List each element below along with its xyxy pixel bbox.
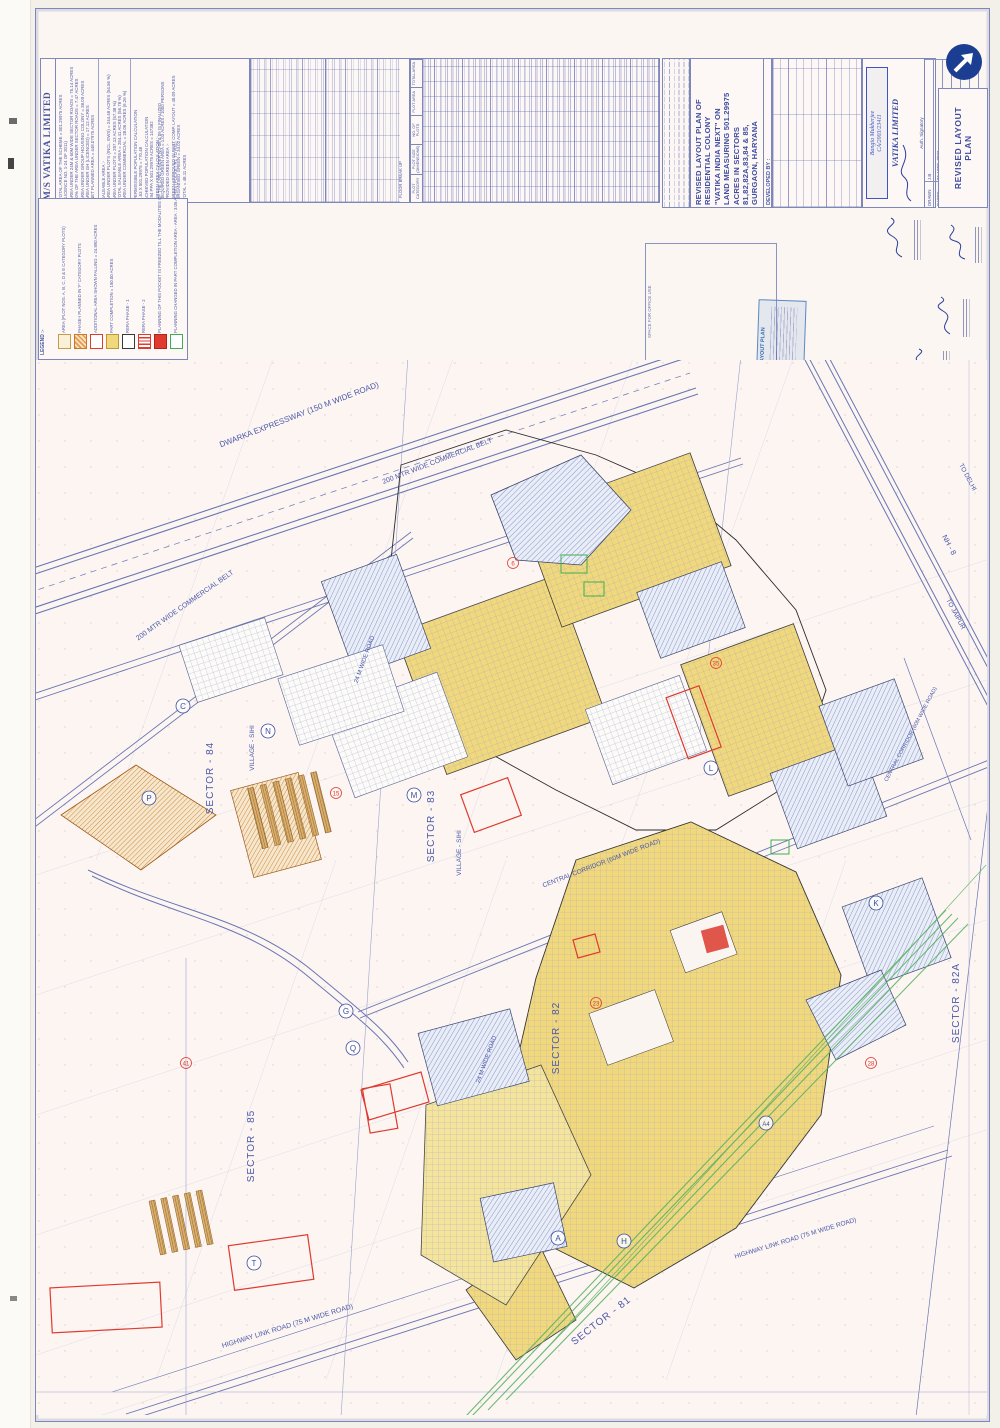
legend-item: PHASE-I PLANNED IN 'F' CATEGORY PLOTS xyxy=(73,203,88,353)
signature-caption xyxy=(975,227,982,263)
layout-map: DWARKA EXPRESSWAY (150 M WIDE ROAD) 200 … xyxy=(36,360,987,1415)
col-plot-size: PLOT SIZE (DIMENSIONS) xyxy=(411,144,422,174)
office-use-label: SPACE FOR OFFICE USE xyxy=(647,248,657,338)
plot-schedule-tables xyxy=(250,58,410,203)
pocket-marker: H xyxy=(621,1237,627,1246)
pocket-marker: A xyxy=(555,1234,561,1243)
signature xyxy=(935,295,983,337)
signature-caption xyxy=(914,220,921,260)
ref-marker: 28 xyxy=(868,1062,875,1068)
architect-stamp-no: CA/2003/23411 xyxy=(877,69,884,197)
notes-micro-text xyxy=(663,59,689,207)
col-plot-category: PLOT CATEGORY xyxy=(411,174,422,202)
label-village-1: VILLAGE - SIHI xyxy=(249,725,256,771)
col-total-area: TOTAL AREA xyxy=(411,59,422,87)
pocket-marker: N xyxy=(265,727,271,736)
sheet-title: REVISED LAYOUT PLAN xyxy=(953,107,973,189)
pocket-marker: A4 xyxy=(762,1122,770,1128)
legend-item: RERA PHASE - 1 xyxy=(121,203,136,353)
legend-swatch-black-outline xyxy=(122,334,135,349)
scanned-drawing-page: M/S VATIKA LIMITED TOTAL AREA OF THE SCH… xyxy=(0,0,1000,1428)
legend-label: ADDITIONAL AREA SHOWN FALLING = 24.890 A… xyxy=(93,203,98,333)
plot-table-body xyxy=(423,59,659,202)
pocket-marker: M xyxy=(411,791,418,800)
area-statement-2: SALEABLE AREA :- AREA UNDER PLOTS (INCL.… xyxy=(98,59,130,202)
schedule-table-upper xyxy=(251,59,326,202)
ref-marker: 35 xyxy=(713,662,720,668)
plot-table-header: PLOT CATEGORY PLOT SIZE (DIMENSIONS) NO.… xyxy=(411,59,423,202)
legend-label: RERA PHASE - 1 xyxy=(125,203,130,333)
ref-marker: 41 xyxy=(183,1062,190,1068)
pocket-marker: C xyxy=(180,702,186,711)
label-sector-83: SECTOR - 83 xyxy=(426,790,437,863)
legend-label: PLANNING CHANGED IN PART COMPLETION AREA… xyxy=(173,203,178,333)
legend-swatch-green-outline xyxy=(170,334,183,349)
legend-label: PLANNING OF THIS POCKET IS FREEZED TILL … xyxy=(157,203,162,333)
legend-swatch-cream xyxy=(58,334,71,349)
architect-stamp: Bangia Mukherjee CA/2003/23411 xyxy=(866,67,888,199)
firm-block: Bangia Mukherjee CA/2003/23411 VATIKA LI… xyxy=(862,58,936,208)
project-title: REVISED LAYOUT PLAN OF RESIDENTIAL COLON… xyxy=(691,59,764,207)
signature-caption xyxy=(963,299,970,337)
legend-label: PHASE-I PLANNED IN 'F' CATEGORY PLOTS xyxy=(77,203,82,333)
pocket-marker: G xyxy=(343,1007,349,1016)
area-statement-block: M/S VATIKA LIMITED TOTAL AREA OF THE SCH… xyxy=(40,58,250,203)
ref-marker: 23 xyxy=(593,1002,600,1008)
scan-speck xyxy=(8,158,14,169)
drawn-label: DRAWN xyxy=(925,181,934,207)
notes-strip xyxy=(662,58,690,208)
legend-swatch-red-outline xyxy=(90,334,103,349)
floor-break-label: FLOOR BREAK UP xyxy=(398,118,410,198)
scan-speck xyxy=(9,118,17,124)
col-plot-area: PLOT AREA xyxy=(411,87,422,115)
legend-label: AREA (PLOT NOS. A, B, C, D & E CATEGORY … xyxy=(61,203,66,333)
pocket-marker: P xyxy=(146,794,151,803)
legend-item: PLANNING OF THIS POCKET IS FREEZED TILL … xyxy=(153,203,168,353)
ref-marker: 15 xyxy=(333,792,340,798)
schedule-table-lower xyxy=(326,59,400,202)
drawn-value: J.B xyxy=(925,59,934,181)
firm-name: VATIKA LIMITED xyxy=(890,59,900,207)
area-statement-1: TOTAL AREA OF THE SCHEME = 501.29975 ACR… xyxy=(56,59,98,202)
label-sector-82: SECTOR - 82 xyxy=(551,1002,562,1075)
vatika-logo-icon xyxy=(944,42,984,82)
pocket-marker: T xyxy=(252,1259,257,1268)
signature xyxy=(886,216,938,260)
revision-grid xyxy=(773,59,861,207)
legend-box: LEGEND :- AREA (PLOT NOS. A, B, C, D & E… xyxy=(38,198,188,360)
scan-speck xyxy=(10,1296,17,1301)
pocket-marker: L xyxy=(709,764,714,773)
legend-item: ADDITIONAL AREA SHOWN FALLING = 24.890 A… xyxy=(89,203,104,353)
pocket-marker: K xyxy=(873,899,879,908)
label-sector-85: SECTOR - 85 xyxy=(246,1110,257,1183)
company-name: M/S VATIKA LIMITED xyxy=(41,59,56,202)
legend-label: RERA PHASE - 2 xyxy=(141,203,146,333)
legend-swatch-red-striped xyxy=(138,334,151,349)
legend-item: PART COMPLETION = 150.00 ACRES xyxy=(105,203,120,353)
plot-table: PLOT CATEGORY PLOT SIZE (DIMENSIONS) NO.… xyxy=(410,58,660,203)
label-village-2: VILLAGE - SIHI xyxy=(456,830,463,876)
legend-item: RERA PHASE - 2 xyxy=(137,203,152,353)
revision-table xyxy=(772,58,862,208)
legend-swatch-orange-hatch xyxy=(74,334,87,349)
legend-items: AREA (PLOT NOS. A, B, C, D & E CATEGORY … xyxy=(57,203,184,353)
floor-break-note: FLOOR BREAK UP xyxy=(398,118,410,198)
legend-item: AREA (PLOT NOS. A, B, C, D & E CATEGORY … xyxy=(57,203,72,353)
legend-title: LEGEND :- xyxy=(40,311,52,355)
legend-swatch-red-fill xyxy=(154,334,167,349)
sheet-title-strip: REVISED LAYOUT PLAN xyxy=(938,88,988,208)
label-sector-82a: SECTOR - 82A xyxy=(951,963,962,1043)
legend-item: PLANNING CHANGED IN PART COMPLETION AREA… xyxy=(169,203,184,353)
legend-swatch-yellow xyxy=(106,334,119,349)
signature xyxy=(947,223,997,263)
project-title-block: REVISED LAYOUT PLAN OF RESIDENTIAL COLON… xyxy=(690,58,772,208)
architect-stamp-name: Bangia Mukherjee xyxy=(870,69,877,197)
scan-gutter xyxy=(0,0,31,1428)
label-sector-84: SECTOR - 84 xyxy=(205,742,216,815)
auth-signature xyxy=(900,137,914,207)
col-no-of-plots: NO. OF PLOTS xyxy=(411,115,422,143)
legend-label: PART COMPLETION = 150.00 ACRES xyxy=(109,203,114,333)
pocket-marker: Q xyxy=(350,1044,356,1053)
